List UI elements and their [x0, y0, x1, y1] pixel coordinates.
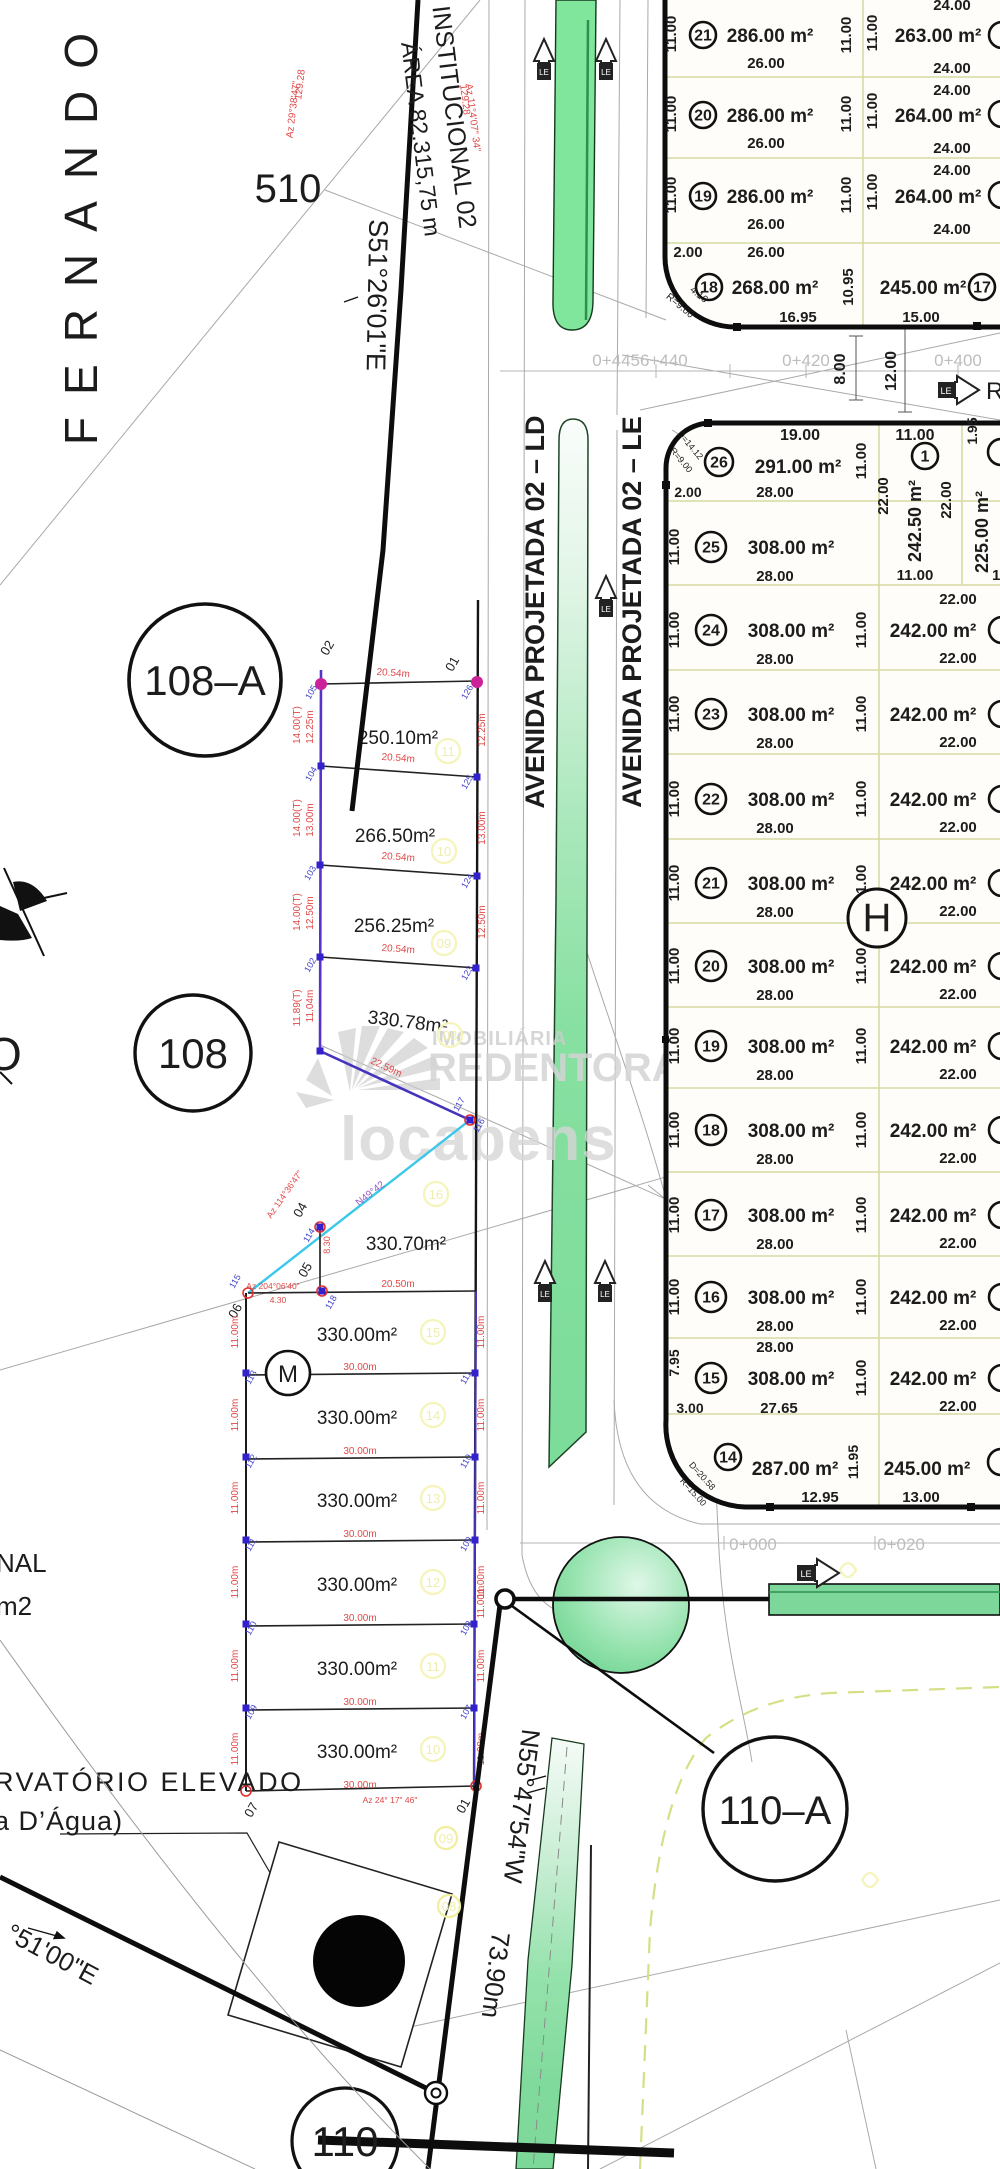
- svg-text:11.00: 11.00: [666, 1279, 683, 1316]
- svg-text:10.95: 10.95: [840, 268, 857, 306]
- svg-text:22.00: 22.00: [939, 1317, 977, 1334]
- svg-text:19: 19: [694, 189, 712, 206]
- svg-text:12.95: 12.95: [801, 1489, 839, 1506]
- svg-text:REDENTORA: REDENTORA: [428, 1046, 681, 1090]
- svg-text:11.00: 11.00: [853, 1112, 870, 1149]
- svg-text:11.00m: 11.00m: [230, 1399, 241, 1432]
- svg-text:242.00 m²: 242.00 m²: [890, 1369, 977, 1390]
- svg-text:242.00 m²: 242.00 m²: [890, 874, 977, 895]
- svg-text:22.00: 22.00: [939, 591, 977, 608]
- svg-text:11.00m: 11.00m: [476, 1316, 487, 1349]
- svg-text:08: 08: [443, 1028, 457, 1043]
- svg-text:242.00 m²: 242.00 m²: [890, 705, 977, 726]
- svg-text:11.04m: 11.04m: [305, 990, 316, 1023]
- svg-text:11.00: 11.00: [666, 865, 683, 902]
- svg-text:28.00: 28.00: [756, 987, 794, 1004]
- svg-text:11.00: 11.00: [853, 1197, 870, 1234]
- svg-text:25: 25: [702, 540, 720, 557]
- svg-text:28.00: 28.00: [756, 484, 794, 501]
- svg-text:256.25m²: 256.25m²: [354, 916, 434, 937]
- svg-text:15: 15: [702, 1371, 720, 1388]
- svg-text:22.00: 22.00: [939, 1398, 977, 1415]
- svg-text:11.00: 11.00: [853, 781, 870, 818]
- svg-text:19.00: 19.00: [780, 427, 820, 444]
- svg-text:26.00: 26.00: [747, 216, 785, 233]
- svg-text:28.00: 28.00: [756, 1067, 794, 1084]
- svg-text:8.00: 8.00: [832, 353, 849, 384]
- svg-text:10: 10: [437, 844, 451, 859]
- svg-text:286.00 m²: 286.00 m²: [727, 106, 814, 127]
- svg-text:11.00: 11.00: [666, 612, 683, 649]
- svg-text:LE: LE: [601, 605, 611, 614]
- svg-text:21: 21: [702, 876, 720, 893]
- svg-text:28.00: 28.00: [756, 904, 794, 921]
- svg-text:10: 10: [426, 1742, 440, 1757]
- svg-text:22.00: 22.00: [939, 734, 977, 751]
- svg-text:11.00m: 11.00m: [230, 1316, 241, 1349]
- svg-text:28.00: 28.00: [756, 735, 794, 752]
- svg-text:108: 108: [158, 1030, 228, 1077]
- svg-text:LE: LE: [601, 68, 611, 77]
- svg-text:30.00m: 30.00m: [343, 1697, 376, 1708]
- svg-text:18: 18: [702, 1123, 720, 1140]
- svg-text:11.00: 11.00: [853, 612, 870, 649]
- svg-text:H: H: [863, 896, 892, 940]
- svg-text:M: M: [278, 1361, 298, 1388]
- svg-text:11.00: 11.00: [666, 1028, 683, 1065]
- svg-text:510: 510: [255, 167, 322, 211]
- svg-text:242.00 m²: 242.00 m²: [890, 1037, 977, 1058]
- svg-text:24.00: 24.00: [933, 60, 971, 77]
- svg-text:8.30: 8.30: [322, 1236, 332, 1254]
- svg-text:23: 23: [702, 707, 720, 724]
- svg-text:26.00: 26.00: [747, 55, 785, 72]
- svg-text:11.00: 11.00: [864, 174, 881, 211]
- svg-text:14: 14: [719, 1450, 737, 1467]
- svg-text:12.25m: 12.25m: [305, 710, 316, 743]
- svg-text:R: R: [986, 378, 1000, 405]
- svg-text:22.00: 22.00: [938, 481, 955, 519]
- svg-text:11.00: 11.00: [663, 177, 680, 214]
- svg-text:11: 11: [441, 744, 455, 759]
- svg-text:30.00m: 30.00m: [343, 1362, 376, 1373]
- svg-text:m2: m2: [0, 1591, 32, 1621]
- svg-text:11.00: 11.00: [853, 443, 870, 480]
- svg-text:24.00: 24.00: [933, 82, 971, 99]
- svg-text:245.00 m²: 245.00 m²: [880, 278, 967, 299]
- svg-text:19: 19: [702, 1039, 720, 1056]
- svg-text:22: 22: [702, 792, 720, 809]
- svg-text:a D’Água): a D’Água): [0, 1806, 123, 1836]
- svg-text:S51°26'01"E: S51°26'01"E: [361, 219, 394, 371]
- svg-text:22.00: 22.00: [939, 819, 977, 836]
- svg-text:308.00 m²: 308.00 m²: [748, 1206, 835, 1227]
- svg-text:20.54m: 20.54m: [376, 667, 410, 680]
- svg-text:2.00: 2.00: [673, 244, 702, 261]
- svg-text:242.00 m²: 242.00 m²: [890, 957, 977, 978]
- svg-text:22.00: 22.00: [939, 986, 977, 1003]
- svg-text:11.00: 11.00: [666, 781, 683, 818]
- svg-text:28.00: 28.00: [756, 1318, 794, 1335]
- svg-text:11.00: 11.00: [853, 696, 870, 733]
- svg-text:11.00: 11.00: [838, 177, 855, 214]
- svg-text:12.50m: 12.50m: [305, 896, 316, 929]
- svg-text:11.00: 11.00: [666, 529, 683, 566]
- svg-text:14.00(T): 14.00(T): [292, 706, 303, 744]
- svg-text:11.00m: 11.00m: [230, 1482, 241, 1515]
- svg-text:20.54m: 20.54m: [381, 752, 415, 765]
- svg-text:AVENIDA PROJETADA 02 – LD: AVENIDA PROJETADA 02 – LD: [520, 415, 550, 808]
- svg-text:291.00 m²: 291.00 m²: [755, 457, 842, 478]
- svg-text:20.50m: 20.50m: [381, 1279, 414, 1290]
- svg-text:308.00 m²: 308.00 m²: [748, 538, 835, 559]
- svg-text:14: 14: [426, 1408, 440, 1423]
- svg-text:24.00: 24.00: [933, 140, 971, 157]
- svg-text:250.10m²: 250.10m²: [358, 728, 438, 749]
- svg-text:LE: LE: [800, 1569, 811, 1579]
- svg-text:14.00(T): 14.00(T): [292, 893, 303, 931]
- svg-text:LE: LE: [539, 68, 549, 77]
- svg-text:264.00 m²: 264.00 m²: [895, 187, 982, 208]
- svg-text:308.00 m²: 308.00 m²: [748, 1369, 835, 1390]
- svg-text:22.00: 22.00: [939, 903, 977, 920]
- svg-text:11.00m: 11.00m: [476, 1399, 487, 1432]
- svg-text:330.00m²: 330.00m²: [317, 1659, 397, 1680]
- svg-text:245.00 m²: 245.00 m²: [884, 1459, 971, 1480]
- svg-text:287.00 m²: 287.00 m²: [752, 1459, 839, 1480]
- svg-text:308.00 m²: 308.00 m²: [748, 1121, 835, 1142]
- svg-text:13.00m: 13.00m: [305, 803, 316, 836]
- svg-text:308.00 m²: 308.00 m²: [748, 1037, 835, 1058]
- svg-text:242.00 m²: 242.00 m²: [890, 1206, 977, 1227]
- svg-text:11.00: 11.00: [897, 567, 934, 584]
- svg-text:110: 110: [312, 2118, 379, 2165]
- svg-text:242.00 m²: 242.00 m²: [890, 621, 977, 642]
- svg-text:FERNANDO: FERNANDO: [55, 11, 107, 445]
- svg-text:LE: LE: [540, 1290, 550, 1299]
- svg-text:22.00: 22.00: [939, 1066, 977, 1083]
- svg-text:28.00: 28.00: [756, 568, 794, 585]
- svg-text:17: 17: [702, 1208, 720, 1225]
- svg-text:16: 16: [429, 1187, 443, 1202]
- svg-text:263.00 m²: 263.00 m²: [895, 26, 982, 47]
- svg-text:11.00: 11.00: [838, 96, 855, 133]
- svg-text:26.00: 26.00: [747, 244, 785, 261]
- svg-text:1.95: 1.95: [964, 417, 980, 444]
- svg-text:27.65: 27.65: [760, 1400, 798, 1417]
- svg-text:LE: LE: [940, 386, 951, 396]
- svg-text:17: 17: [973, 280, 991, 297]
- svg-text:28.00: 28.00: [756, 820, 794, 837]
- svg-text:12.50m: 12.50m: [477, 905, 488, 938]
- svg-text:20.54m: 20.54m: [381, 851, 415, 864]
- svg-text:28.00: 28.00: [756, 651, 794, 668]
- svg-text:16.95: 16.95: [779, 309, 817, 326]
- svg-text:26: 26: [710, 455, 728, 472]
- svg-text:11.95: 11.95: [845, 1445, 861, 1479]
- svg-text:12.00: 12.00: [883, 351, 900, 391]
- svg-text:O: O: [0, 1028, 22, 1080]
- svg-text:20.54m: 20.54m: [381, 943, 415, 956]
- svg-text:locabens: locabens: [340, 1105, 617, 1174]
- svg-text:308.00 m²: 308.00 m²: [748, 790, 835, 811]
- svg-text:11.00: 11.00: [666, 696, 683, 733]
- svg-text:21: 21: [694, 28, 712, 45]
- svg-text:24.00: 24.00: [933, 162, 971, 179]
- svg-text:0+4456+440: 0+4456+440: [592, 351, 688, 370]
- svg-text:AVENIDA PROJETADA 02 – LE: AVENIDA PROJETADA 02 – LE: [617, 416, 647, 808]
- svg-text:30.00m: 30.00m: [343, 1446, 376, 1457]
- svg-text:22.00: 22.00: [939, 1150, 977, 1167]
- svg-text:286.00 m²: 286.00 m²: [727, 26, 814, 47]
- svg-text:22.00: 22.00: [939, 1235, 977, 1252]
- svg-text:12.25m: 12.25m: [477, 713, 488, 746]
- svg-text:0+000: 0+000: [729, 1535, 777, 1554]
- svg-text:11.00: 11.00: [666, 1197, 683, 1234]
- svg-text:242.00 m²: 242.00 m²: [890, 1121, 977, 1142]
- svg-text:11.00: 11.00: [864, 15, 881, 52]
- svg-text:0+400: 0+400: [934, 351, 982, 370]
- svg-text:108–A: 108–A: [144, 657, 265, 704]
- svg-text:3.00: 3.00: [676, 1400, 703, 1416]
- svg-text:286.00 m²: 286.00 m²: [727, 187, 814, 208]
- svg-text:11.00m: 11.00m: [476, 1586, 487, 1619]
- svg-text:26.00: 26.00: [747, 135, 785, 152]
- svg-text:1: 1: [921, 449, 930, 466]
- svg-text:11.00m: 11.00m: [230, 1733, 241, 1766]
- svg-text:11.00: 11.00: [663, 16, 680, 53]
- svg-text:110–A: 110–A: [719, 1789, 832, 1833]
- svg-text:11.: 11.: [992, 567, 1000, 584]
- svg-text:24.00: 24.00: [933, 0, 971, 14]
- svg-text:308.00 m²: 308.00 m²: [748, 705, 835, 726]
- svg-text:11.00: 11.00: [853, 1279, 870, 1316]
- svg-text:11.00m: 11.00m: [230, 1650, 241, 1683]
- svg-text:11.00: 11.00: [895, 427, 934, 444]
- svg-text:0+020: 0+020: [877, 1535, 925, 1554]
- svg-text:11.00: 11.00: [853, 1028, 870, 1065]
- svg-text:308.00 m²: 308.00 m²: [748, 621, 835, 642]
- svg-text:11.00m: 11.00m: [230, 1566, 241, 1599]
- svg-text:24: 24: [702, 623, 720, 640]
- svg-text:NAL: NAL: [0, 1548, 47, 1578]
- svg-text:28.00: 28.00: [756, 1151, 794, 1168]
- svg-text:11.00: 11.00: [838, 17, 855, 54]
- svg-text:14.00(T): 14.00(T): [292, 799, 303, 837]
- svg-text:20: 20: [694, 108, 712, 125]
- svg-text:266.50m²: 266.50m²: [355, 826, 435, 847]
- svg-text:268.00 m²: 268.00 m²: [732, 278, 819, 299]
- svg-text:Az 204°06'40": Az 204°06'40": [246, 1281, 299, 1291]
- svg-text:16: 16: [702, 1290, 720, 1307]
- svg-text:11: 11: [426, 1659, 440, 1674]
- svg-text:11.00: 11.00: [853, 948, 870, 985]
- svg-text:11.00: 11.00: [666, 1112, 683, 1149]
- svg-text:11.00m: 11.00m: [476, 1482, 487, 1515]
- svg-text:30.00m: 30.00m: [343, 1529, 376, 1540]
- svg-text:11.89(T): 11.89(T): [292, 989, 303, 1026]
- svg-text:22.00: 22.00: [875, 477, 892, 515]
- svg-text:22.00: 22.00: [939, 650, 977, 667]
- svg-text:242.50 m²: 242.50 m²: [905, 480, 925, 562]
- svg-text:13.00m: 13.00m: [477, 811, 488, 844]
- svg-text:330.00m²: 330.00m²: [317, 1491, 397, 1512]
- svg-text:LE: LE: [600, 1290, 610, 1299]
- svg-text:308.00 m²: 308.00 m²: [748, 1288, 835, 1309]
- svg-text:30.00m: 30.00m: [343, 1780, 376, 1791]
- svg-text:08: 08: [442, 1899, 456, 1914]
- svg-text:20: 20: [702, 959, 720, 976]
- svg-text:11.00: 11.00: [666, 948, 683, 985]
- svg-text:2.00: 2.00: [674, 484, 701, 500]
- svg-text:11.00: 11.00: [853, 1360, 870, 1397]
- svg-text:13.00: 13.00: [902, 1489, 940, 1506]
- svg-text:0+420: 0+420: [782, 351, 830, 370]
- svg-text:RVATÓRIO ELEVADO: RVATÓRIO ELEVADO: [0, 1766, 304, 1797]
- svg-text:330.00m²: 330.00m²: [317, 1575, 397, 1596]
- svg-text:330.70m²: 330.70m²: [366, 1234, 446, 1255]
- svg-text:15.00: 15.00: [902, 309, 940, 326]
- svg-text:4.30: 4.30: [270, 1295, 287, 1305]
- svg-text:330.00m²: 330.00m²: [317, 1325, 397, 1346]
- svg-text:7.95: 7.95: [666, 1349, 682, 1376]
- svg-text:15: 15: [426, 1325, 440, 1340]
- svg-text:264.00 m²: 264.00 m²: [895, 106, 982, 127]
- svg-text:11.00m: 11.00m: [476, 1650, 487, 1683]
- svg-text:28.00: 28.00: [756, 1339, 794, 1356]
- svg-text:Az 24° 17" 46": Az 24° 17" 46": [363, 1795, 418, 1805]
- svg-text:28.00: 28.00: [756, 1236, 794, 1253]
- svg-text:11.00: 11.00: [663, 96, 680, 133]
- svg-text:30.00m: 30.00m: [343, 1613, 376, 1624]
- svg-text:330.00m²: 330.00m²: [317, 1408, 397, 1429]
- svg-text:330.00m²: 330.00m²: [317, 1742, 397, 1763]
- svg-text:13: 13: [426, 1491, 440, 1506]
- svg-text:308.00 m²: 308.00 m²: [748, 957, 835, 978]
- svg-text:225.00 m²: 225.00 m²: [972, 491, 992, 573]
- svg-text:09: 09: [439, 1831, 453, 1846]
- svg-text:12: 12: [426, 1575, 440, 1590]
- svg-text:11.00: 11.00: [864, 93, 881, 130]
- svg-text:242.00 m²: 242.00 m²: [890, 790, 977, 811]
- svg-text:09: 09: [437, 936, 451, 951]
- svg-text:308.00 m²: 308.00 m²: [748, 874, 835, 895]
- svg-text:242.00 m²: 242.00 m²: [890, 1288, 977, 1309]
- svg-text:24.00: 24.00: [933, 221, 971, 238]
